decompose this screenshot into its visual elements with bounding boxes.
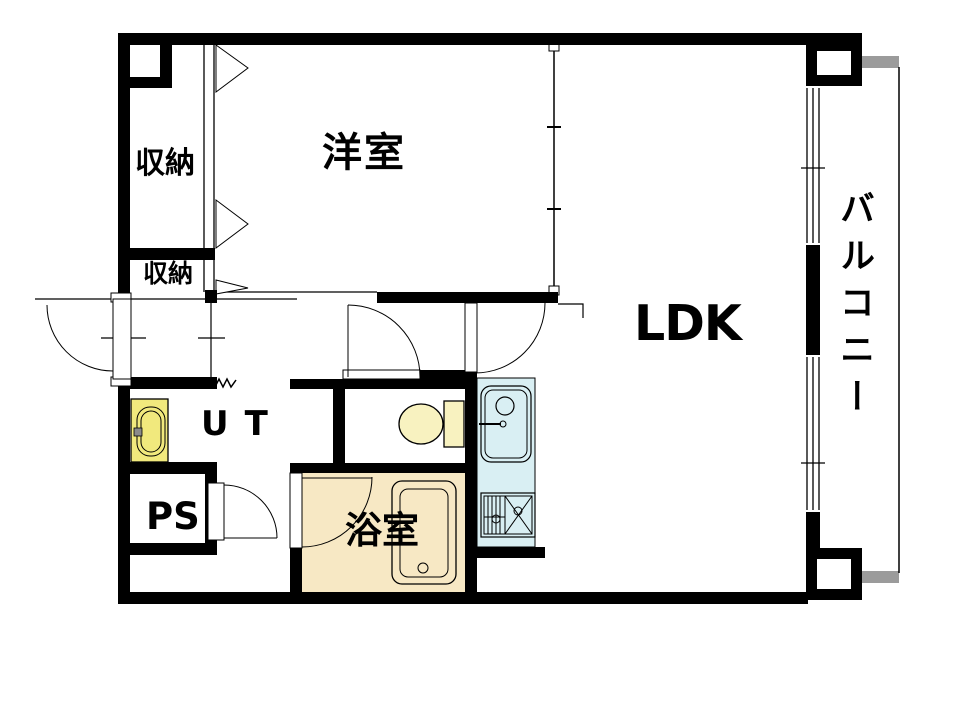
- ldk-door-leaf: [465, 303, 477, 372]
- wall: [290, 379, 477, 389]
- closet-upper-label: 収納: [135, 149, 195, 179]
- ldk-corner-line: [558, 304, 583, 318]
- pillar-hollow: [817, 51, 851, 75]
- door-swing-arc-icon: [475, 303, 545, 373]
- wall: [205, 290, 217, 303]
- vanity-sink-icon: [131, 399, 168, 462]
- wall: [377, 292, 558, 303]
- wall: [333, 388, 345, 465]
- floor-plan-drawing: [0, 0, 974, 718]
- wall: [130, 77, 172, 88]
- partition: [547, 42, 561, 295]
- wall: [128, 543, 217, 555]
- bathroom-label: 浴室: [345, 512, 419, 549]
- pillar-hollow: [817, 559, 851, 589]
- wall: [118, 592, 808, 604]
- wall: [128, 462, 217, 474]
- entrance-door-icon: [113, 299, 131, 379]
- balcony-divider-icon: [862, 56, 899, 68]
- break-line-zigzag-icon: [215, 379, 236, 387]
- wall: [290, 463, 477, 473]
- toilet-door-sill: [343, 370, 420, 379]
- balcony-label: バルコニー: [836, 190, 871, 425]
- balcony-divider-icon: [862, 571, 899, 583]
- wall: [118, 33, 862, 45]
- door-swing-arc-icon: [224, 485, 277, 538]
- utility-label: UT: [201, 407, 284, 441]
- wall: [118, 377, 130, 604]
- wall: [130, 377, 217, 389]
- wall: [465, 547, 545, 558]
- wall: [290, 548, 302, 592]
- closet-lower-label: 収納: [143, 261, 193, 286]
- bedroom-label: 洋室: [322, 133, 406, 173]
- floor-plan: 収納 収納 洋室 LDK UT PS 浴室 バルコニー: [0, 0, 974, 718]
- bathroom-door-frame: [290, 473, 302, 548]
- toilet-icon: [399, 401, 464, 447]
- pipe-space-label: PS: [146, 498, 200, 535]
- wall: [806, 243, 820, 357]
- door-swing-arc-icon: [348, 305, 420, 377]
- ldk-label: LDK: [634, 299, 741, 348]
- wall: [806, 510, 820, 553]
- wall: [465, 370, 477, 592]
- hall-door-leaf: [208, 483, 224, 540]
